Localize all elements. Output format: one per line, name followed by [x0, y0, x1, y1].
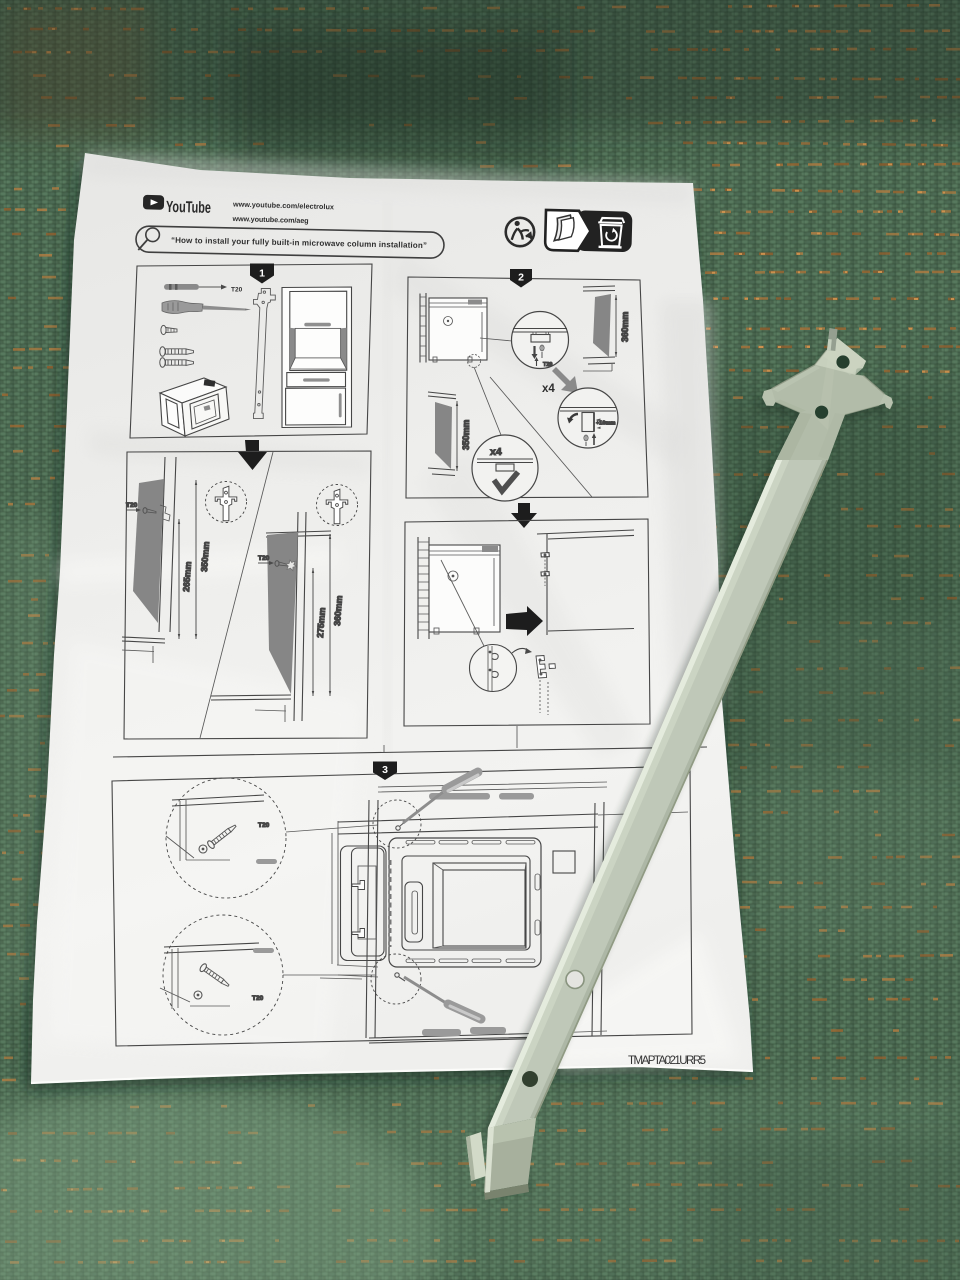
svg-text:265mm: 265mm	[181, 561, 193, 592]
svg-text:2: 2	[518, 272, 524, 284]
svg-text:T20: T20	[231, 287, 243, 294]
svg-text:350mm: 350mm	[199, 541, 211, 572]
svg-text:275mm: 275mm	[315, 607, 327, 638]
svg-text:x4: x4	[542, 383, 555, 395]
svg-text:T20: T20	[543, 362, 552, 368]
svg-text:x4: x4	[490, 446, 502, 458]
svg-text:YouTube: YouTube	[166, 199, 211, 217]
svg-text:360mm: 360mm	[332, 595, 344, 626]
svg-text:T20: T20	[252, 995, 264, 1002]
svg-text:TMAPTA021URR5: TMAPTA021URR5	[628, 1055, 706, 1067]
svg-text:360mm: 360mm	[620, 312, 630, 342]
svg-text:T20: T20	[258, 555, 270, 562]
svg-text:1: 1	[259, 268, 265, 280]
svg-text:3: 3	[382, 764, 388, 776]
svg-text:350mm: 350mm	[461, 420, 471, 450]
svg-text:T20: T20	[258, 822, 270, 829]
svg-text:+10mm: +10mm	[596, 421, 615, 427]
svg-text:T20: T20	[126, 502, 138, 509]
